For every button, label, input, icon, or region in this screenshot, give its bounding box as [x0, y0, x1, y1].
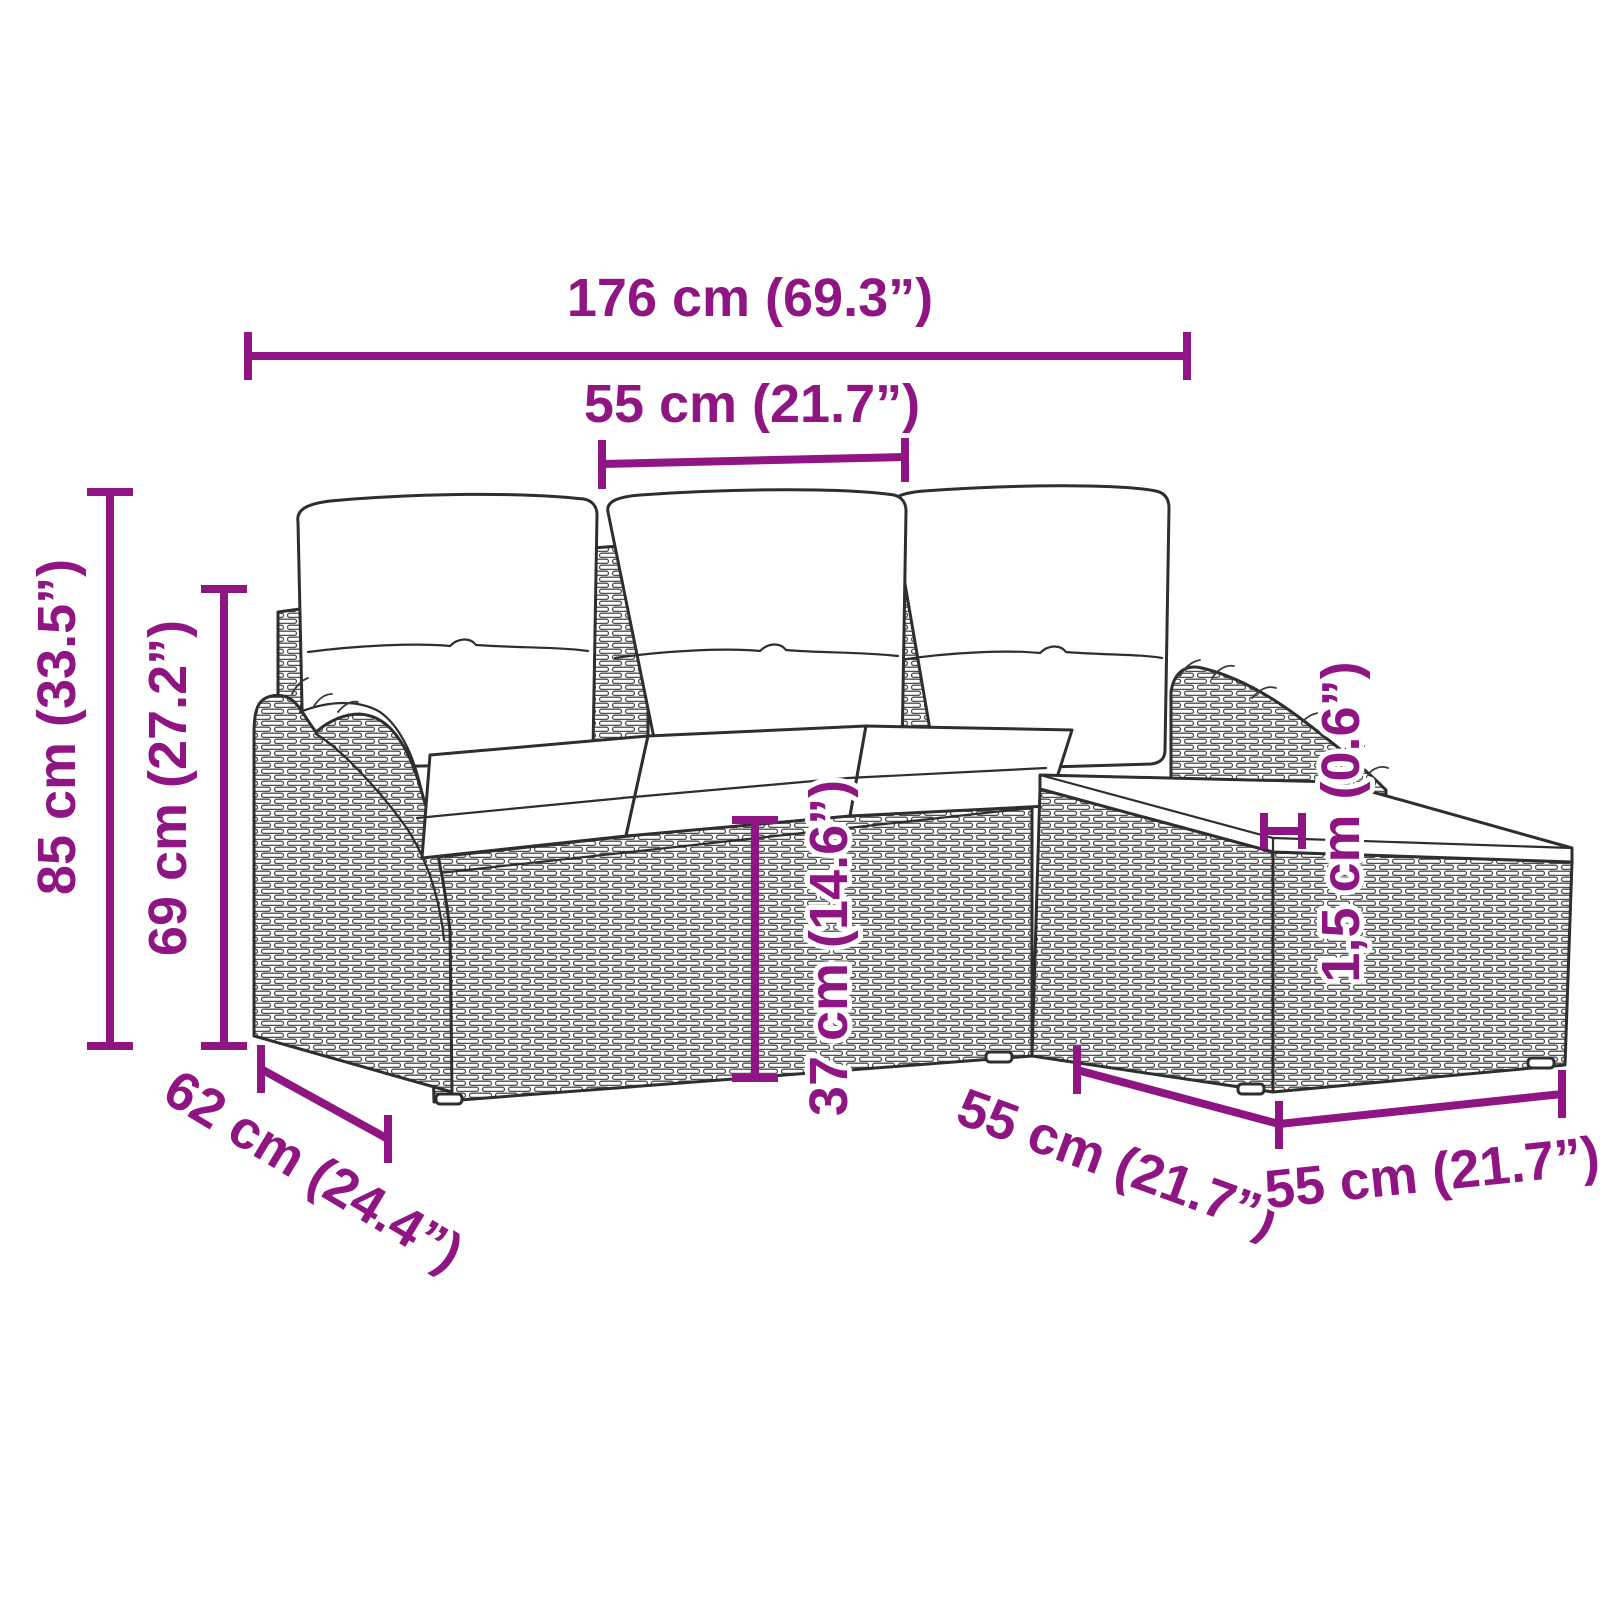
dim-middle-seat-width-label: 55 cm (21.7”): [584, 374, 920, 434]
dim-total-height: 85 cm (33.5”): [27, 492, 133, 1046]
dim-total-width-label: 176 cm (69.3”): [567, 268, 933, 328]
dim-backrest-height: 69 cm (27.2”): [138, 589, 247, 1046]
dim-seat-height-label: 37 cm (14.6”): [799, 780, 859, 1116]
dim-ottoman-width-label: 55 cm (21.7”): [1262, 1125, 1600, 1220]
sofa-illustration: [254, 486, 1572, 1104]
dim-ottoman-width: 55 cm (21.7”): [1262, 1070, 1600, 1220]
dim-total-height-label: 85 cm (33.5”): [27, 559, 87, 895]
dim-backrest-height-label: 69 cm (27.2”): [138, 620, 198, 956]
dim-ottoman-depth-label: 55 cm (21.7”): [949, 1077, 1285, 1248]
dim-total-width: 176 cm (69.3”): [248, 268, 1187, 380]
dim-cushion-thickness-label: 1,5 cm (0.6”): [1311, 661, 1371, 982]
dim-sofa-depth-label: 62 cm (24.4”): [154, 1058, 473, 1283]
dimension-diagram: 176 cm (69.3”) 55 cm (21.7”) 85 cm (33.5…: [0, 0, 1600, 1600]
dim-middle-seat-width: 55 cm (21.7”): [584, 374, 920, 489]
diagram-canvas: 176 cm (69.3”) 55 cm (21.7”) 85 cm (33.5…: [0, 0, 1600, 1600]
